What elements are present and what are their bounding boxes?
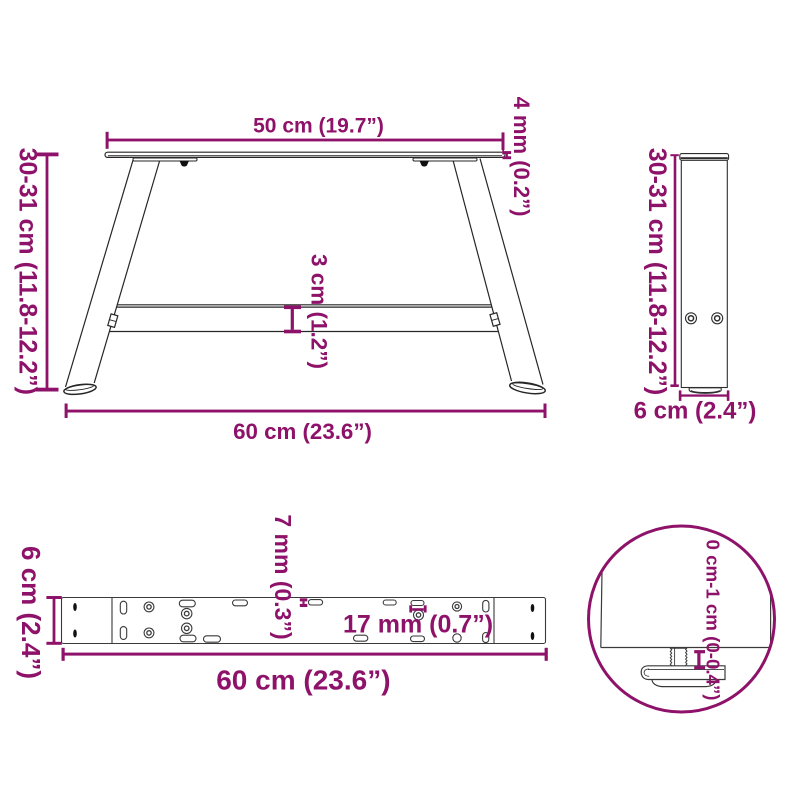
svg-text:6 cm (2.4”): 6 cm (2.4”) (16, 546, 46, 679)
svg-text:7 mm (0.3”): 7 mm (0.3”) (270, 514, 296, 639)
svg-text:50 cm (19.7”): 50 cm (19.7”) (253, 115, 384, 138)
svg-text:3 cm (1.2”): 3 cm (1.2”) (307, 254, 332, 369)
svg-text:30-31 cm (11.8-12.2”): 30-31 cm (11.8-12.2”) (14, 148, 42, 395)
svg-text:17 mm (0.7”): 17 mm (0.7”) (343, 611, 493, 639)
svg-text:6 cm (2.4”): 6 cm (2.4”) (634, 398, 757, 425)
svg-text:60 cm (23.6”): 60 cm (23.6”) (233, 419, 372, 444)
svg-text:60 cm (23.6”): 60 cm (23.6”) (216, 665, 390, 696)
svg-text:4 mm (0.2”): 4 mm (0.2”) (509, 97, 534, 217)
svg-text:30-31 cm (11.8-12.2”): 30-31 cm (11.8-12.2”) (643, 148, 671, 395)
svg-text:0 cm-1 cm (0-0.4”): 0 cm-1 cm (0-0.4”) (703, 540, 724, 701)
